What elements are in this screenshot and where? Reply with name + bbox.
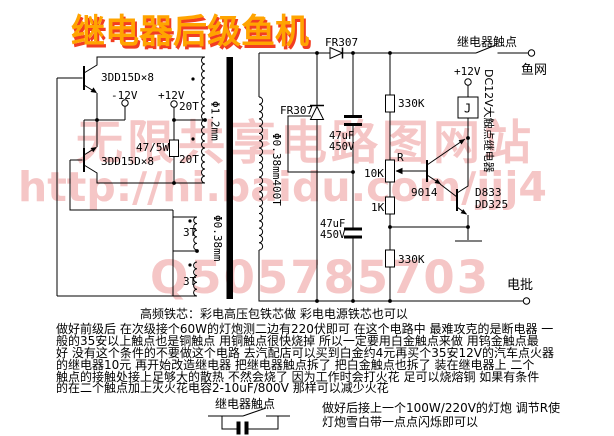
label-neg12v: -12V xyxy=(111,89,138,102)
page-title: 继电器后级鱼机 xyxy=(71,4,309,53)
schematic-page: 无限共享电路图网站 http://hi.baidu.com/jjj4 Q5057… xyxy=(0,0,614,436)
watermark-url: http://hi.baidu.com/jjj4 xyxy=(18,163,547,211)
diode-fr307-series-icon xyxy=(330,48,343,59)
label-3t-top: 3T xyxy=(183,226,197,239)
tip-line: 做好后接上一个100W/220V的灯炮 调节R使 xyxy=(322,402,560,416)
label-fr307-series: FR307 xyxy=(325,36,358,49)
label-pos12v: +12V xyxy=(158,89,185,102)
label-cap2-uf: 47uF xyxy=(320,218,345,230)
tip-line: 灯炮雪白带一点点闪烁即可以 xyxy=(322,416,560,430)
label-relay-pos12v: +12V xyxy=(454,65,481,78)
snubber-cap-plate xyxy=(245,422,249,435)
label-relay-contact: 继电器触点 xyxy=(457,35,517,49)
label-fishnet: 鱼网 xyxy=(521,62,547,78)
feedback-winding-3t-top xyxy=(194,217,197,250)
cap2-plates xyxy=(344,229,362,237)
note-line: 高频铁芯：彩电高压包铁芯做 彩电电源铁芯也可以 xyxy=(140,309,554,321)
notes-block: 高频铁芯：彩电高压包铁芯做 彩电电源铁芯也可以 做好前级后 在次级接个60W的灯… xyxy=(56,309,554,395)
terminal-relay-pos12v xyxy=(465,79,471,85)
snubber-cap-plate xyxy=(237,422,241,435)
label-electrode: 电批 xyxy=(507,278,533,293)
footer-tips: 做好后接上一个100W/220V的灯炮 调节R使 灯炮雪白带一点点闪烁即可以 xyxy=(322,402,560,429)
note-line: 的在二个触点加上灭火花电容2-10uF/800V 那样可以减少火花 xyxy=(56,383,554,395)
terminal-fishnet xyxy=(528,50,534,56)
label-q1: 3DD15D×8 xyxy=(101,71,154,84)
watermark-qq-number: Q505785703 xyxy=(150,251,490,304)
terminal-electrode xyxy=(523,298,529,304)
footer-contact-label: 继电器触点 xyxy=(215,395,275,412)
label-cap2-v: 450V xyxy=(320,229,346,241)
